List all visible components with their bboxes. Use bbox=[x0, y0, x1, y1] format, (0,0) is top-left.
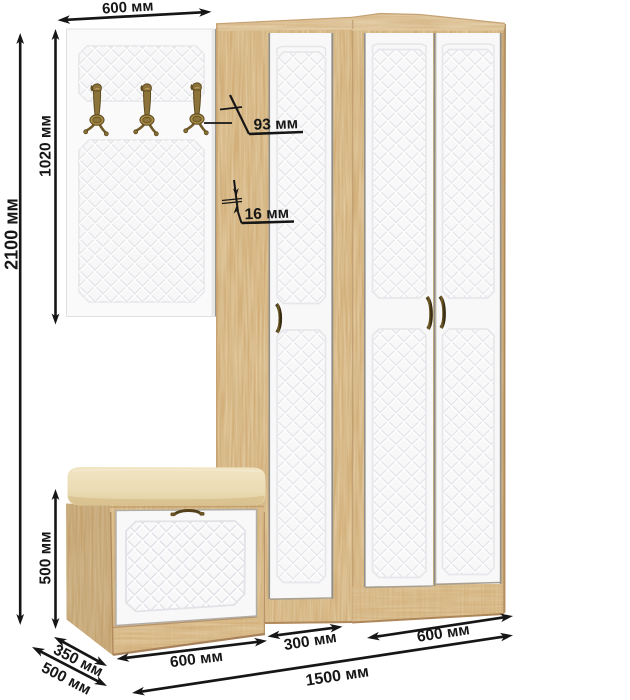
svg-text:93 мм: 93 мм bbox=[253, 115, 298, 134]
svg-text:2100 мм: 2100 мм bbox=[2, 198, 22, 270]
svg-text:500 мм: 500 мм bbox=[38, 531, 55, 584]
svg-text:16 мм: 16 мм bbox=[244, 205, 289, 224]
svg-text:1020 мм: 1020 мм bbox=[38, 115, 55, 177]
